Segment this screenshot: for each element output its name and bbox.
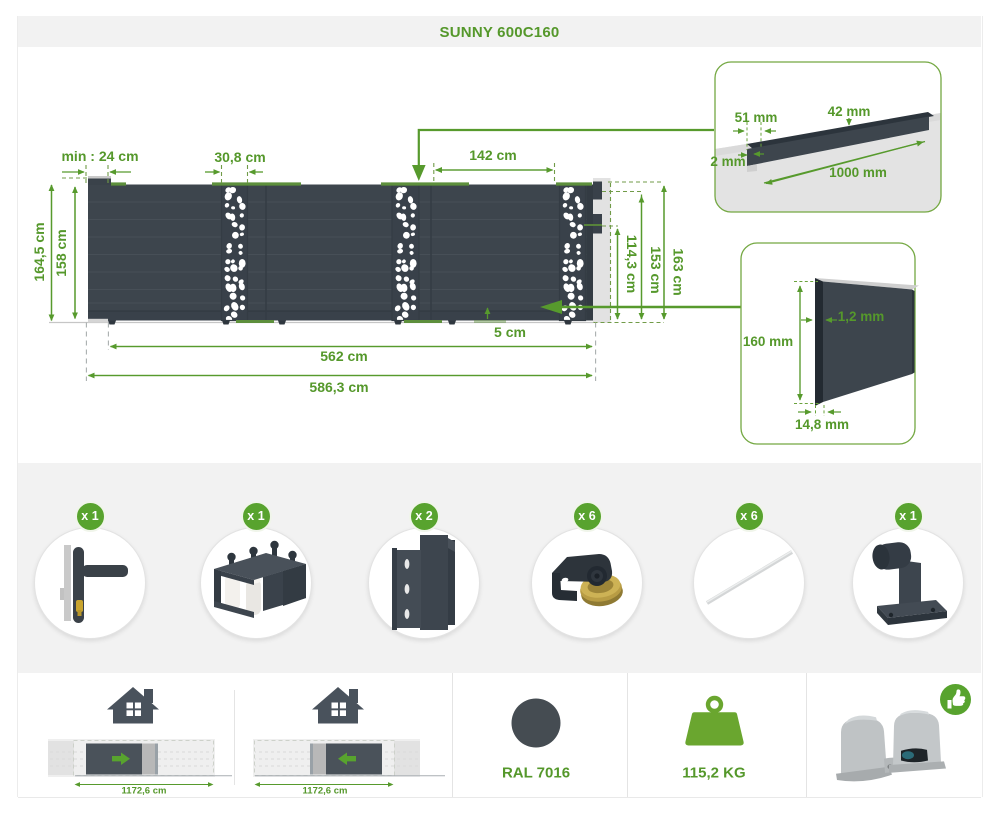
svg-text:586,3 cm: 586,3 cm [309, 379, 368, 395]
svg-text:1000 mm: 1000 mm [829, 165, 887, 180]
svg-text:14,8 mm: 14,8 mm [795, 417, 849, 432]
svg-text:5 cm: 5 cm [494, 324, 526, 340]
svg-text:1172,6 cm: 1172,6 cm [303, 786, 348, 797]
svg-text:142 cm: 142 cm [469, 147, 516, 163]
svg-text:562 cm: 562 cm [320, 348, 367, 364]
svg-text:51 mm: 51 mm [735, 110, 778, 125]
svg-text:153 cm: 153 cm [648, 246, 664, 293]
svg-text:163 cm: 163 cm [671, 248, 687, 295]
svg-text:min : 24 cm: min : 24 cm [61, 148, 138, 164]
svg-text:1172,6 cm: 1172,6 cm [122, 786, 167, 797]
svg-text:160 mm: 160 mm [743, 334, 793, 349]
svg-text:42 mm: 42 mm [828, 104, 871, 119]
svg-text:115,2 KG: 115,2 KG [682, 765, 745, 782]
svg-text:1,2 mm: 1,2 mm [838, 309, 885, 324]
svg-text:30,8 cm: 30,8 cm [214, 149, 265, 165]
svg-text:114,3 cm: 114,3 cm [624, 235, 640, 293]
svg-text:164,5 cm: 164,5 cm [31, 222, 47, 281]
svg-text:RAL 7016: RAL 7016 [502, 765, 570, 782]
svg-text:2 mm: 2 mm [710, 154, 745, 169]
svg-text:158 cm: 158 cm [53, 229, 69, 276]
